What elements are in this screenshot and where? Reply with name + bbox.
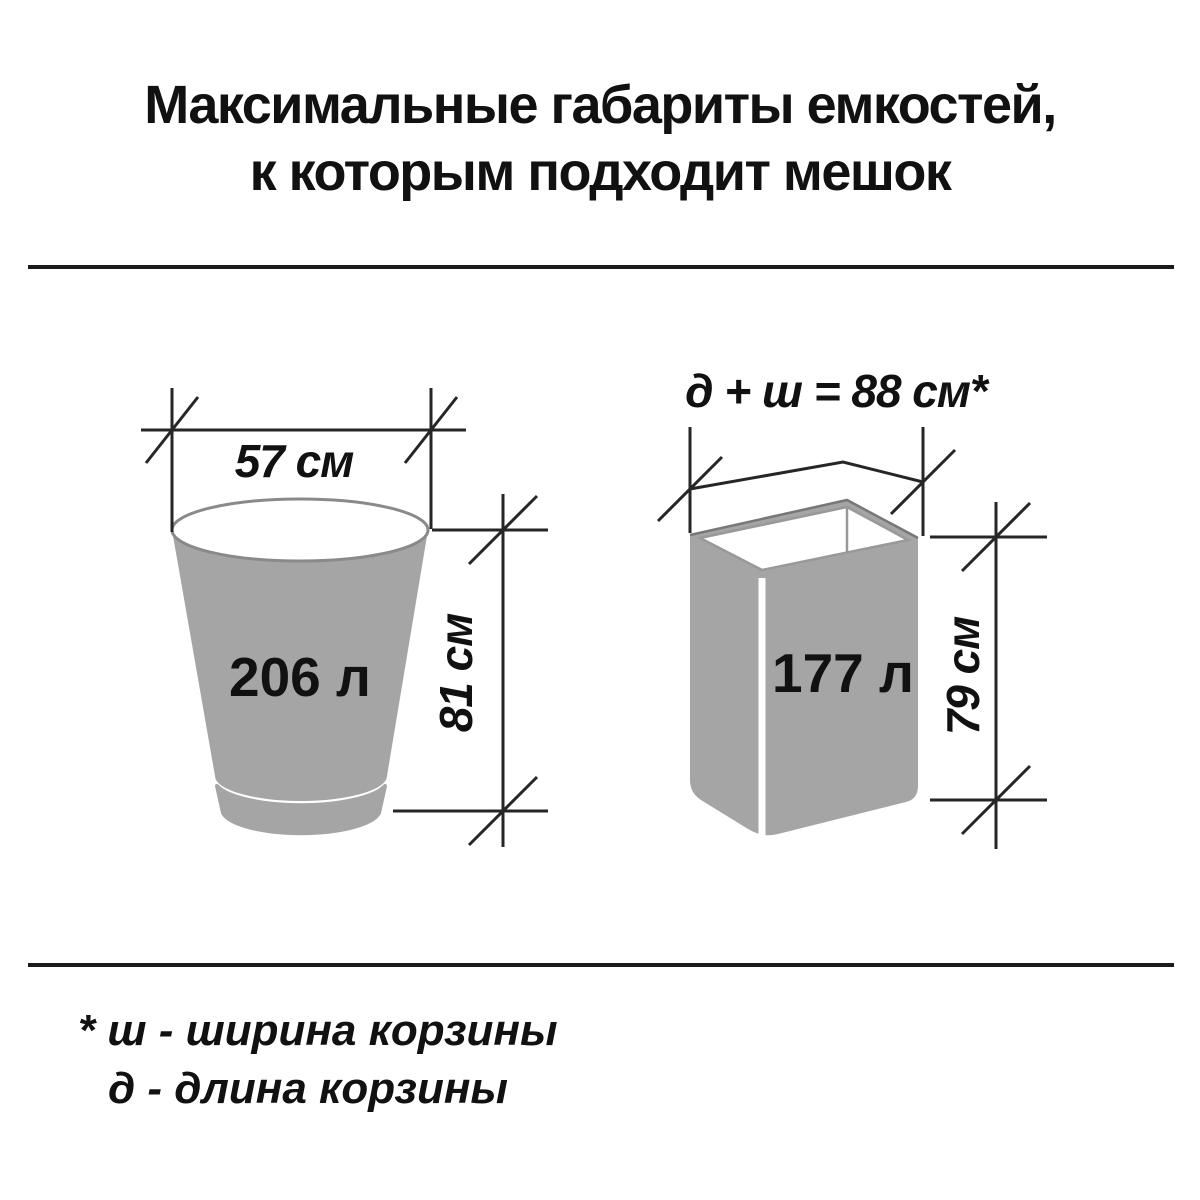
infographic-page: Максимальные габариты емкостей, к которы… (0, 0, 1200, 1200)
footnote-line-2: д - длина корзины (78, 1060, 558, 1118)
dimension-line (690, 462, 923, 489)
footnote-line-1: * ш - ширина корзины (78, 1002, 558, 1060)
basket-formula-label: д + ш = 88 см* (685, 364, 987, 418)
bucket-height-label: 81 см (429, 614, 483, 733)
basket-volume-label: 177 л (772, 641, 914, 705)
bucket-opening (172, 499, 428, 561)
bucket-volume-label: 206 л (229, 645, 371, 709)
basket-height-label: 79 см (936, 617, 990, 736)
bucket-width-label: 57 см (235, 434, 354, 488)
footnote-block: * ш - ширина корзины д - длина корзины (78, 1002, 558, 1118)
